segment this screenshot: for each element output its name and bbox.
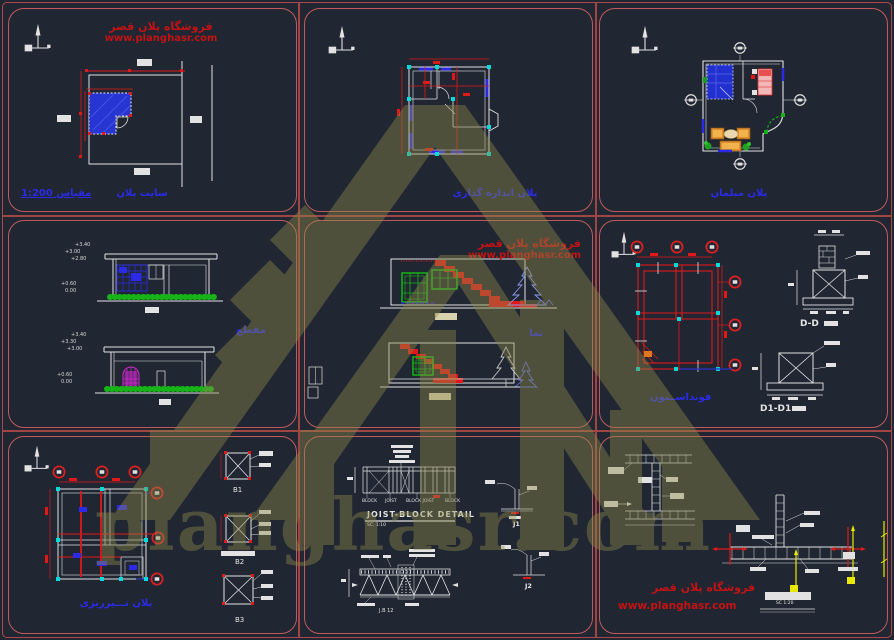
store-title: فروشگاه پلان قصر [478,238,581,249]
window-1 [402,273,427,302]
elevation-b-drawing [380,343,537,400]
north-arrow-icon [632,26,658,54]
brick-hatch [401,260,537,308]
column-detail-b2 [221,510,271,556]
furniture-plan-drawing [600,9,887,211]
beam-annotations [73,493,150,579]
bed-furniture [703,65,733,100]
detail-j2-drawing [501,545,549,579]
detail-d1d1-label: D1-D1 [760,405,791,414]
truss-section [341,549,458,606]
level-marker: +3.40 [75,243,90,248]
detail-dd-label: D-D [800,320,819,329]
street-lines [182,61,212,187]
block-label-right: BLOCK [445,500,460,505]
section-b-drawing [95,347,219,405]
level-marker: +2.80 [71,257,86,262]
level-marker: +3.40 [71,333,86,338]
entry-door-arc [764,113,785,134]
column-detail-b1 [221,451,273,480]
sections-drawing [9,221,296,427]
detail-j2-label: J2 [525,583,532,590]
detail-dd-drawing [788,230,870,326]
drawing-sheet: فروشگاه پلان قصر www.planghasr.com مقیاس… [0,0,894,640]
detail-b2-label: B2 [235,559,244,566]
panel-foundation: D-D D1-D1 فونداســیون [599,220,888,428]
north-arrow-icon [25,446,49,472]
joist-block-drawing [305,437,592,633]
wall-detail-scale: SC 1:20 [776,602,794,607]
elevation-a-drawing [380,259,557,320]
section-a-drawing [97,254,223,313]
detail-j1-label: J1 [513,521,520,528]
annotation-labels [736,511,858,573]
level-marker: 0.00 [65,289,76,294]
dimension-plan-drawing [305,9,592,211]
grid-line-vertical-2 [595,3,597,637]
panel-dimension-plan: پلان اندازه گذاری [304,8,593,212]
rebar-marks [790,521,887,592]
store-url: www.planghasr.com [105,34,218,44]
legend-symbols [308,367,322,398]
grid-line-horizontal-1 [3,215,891,217]
detail-b3-label: B3 [235,617,244,624]
grid-line-horizontal-2 [3,430,891,432]
grid-line-vertical-1 [298,3,300,637]
corner-rebar-detail [604,455,695,525]
store-title: فروشگاه پلان قصر [652,582,755,593]
beam-plan-caption: پلان تـــیرریزی [80,599,153,609]
walls [409,67,498,154]
panel-elevations: فروشگاه پلان قصر www.planghasr.com نما [304,220,593,428]
block-joist-label: BLOCK JOIST [406,500,434,505]
north-arrow-icon [329,26,355,54]
blue-window [117,265,147,291]
store-url: www.planghasr.com [468,251,581,261]
bed-2-furniture [751,69,772,95]
panel-furniture-plan: پلان مبلمان [599,8,888,212]
panel-sections: +3.40 +3.00 +2.80 +0.60 0.00 +3.40 +3.30… [8,220,297,428]
foundation-drawing [600,221,887,427]
level-marker: 0.00 [61,380,72,385]
level-marker: +0.60 [57,373,72,378]
level-marker: +3.30 [61,340,76,345]
furniture-plan-caption: پلان مبلمان [711,189,768,199]
joist-block-title: JOIST-BLOCK DETAIL [367,511,475,519]
axis-markers [53,466,163,584]
level-marker: +0.60 [61,282,76,287]
block-label-left: BLOCK [362,500,377,505]
window-3 [413,357,433,375]
dimension-plan-caption: پلان اندازه گذاری [453,189,538,199]
sections-caption: مقطع [236,326,266,336]
level-marker: +3.00 [65,250,80,255]
detail-j1-drawing [485,480,537,519]
store-url: www.planghasr.com [618,601,736,612]
store-title: فروشگاه پلان قصر [109,21,212,32]
site-plan-caption: سایت پلان [116,189,167,199]
jb-label: J.B 12 [379,609,393,614]
foundation-caption: فونداســیون [650,393,711,403]
building-footprint [88,92,132,135]
detail-d1d1-drawing [752,341,840,411]
strip-footings [635,262,718,372]
elevations-caption: نما [529,329,543,339]
wall-nodes [407,65,491,156]
brick-hatch [400,344,463,383]
arched-window [123,367,139,388]
detail-b1-label: B1 [233,487,242,494]
site-plan-scale: مقیاس 1:200 [21,189,91,199]
column-detail-b3 [222,570,273,605]
north-arrow-icon [25,24,51,52]
joist-label: JOIST [385,500,397,505]
level-marker: +3.00 [67,347,82,352]
sofa-set-furniture [704,128,751,151]
panel-site-plan: فروشگاه پلان قصر www.planghasr.com مقیاس… [8,8,297,212]
slab-wall-connection-detail [712,495,887,592]
joist-block-scale: SC. 1:10 [367,524,386,529]
window-symbols [411,69,487,152]
panel-beam-plan: B1 B2 B3 پلان تـــیرریزی [8,436,297,634]
panel-joist-block: BLOCK JOIST BLOCK JOIST BLOCK JOIST-BLOC… [304,436,593,634]
panel-wall-details: SC 1:20 فروشگاه پلان قصر www.planghasr.c… [599,436,888,634]
